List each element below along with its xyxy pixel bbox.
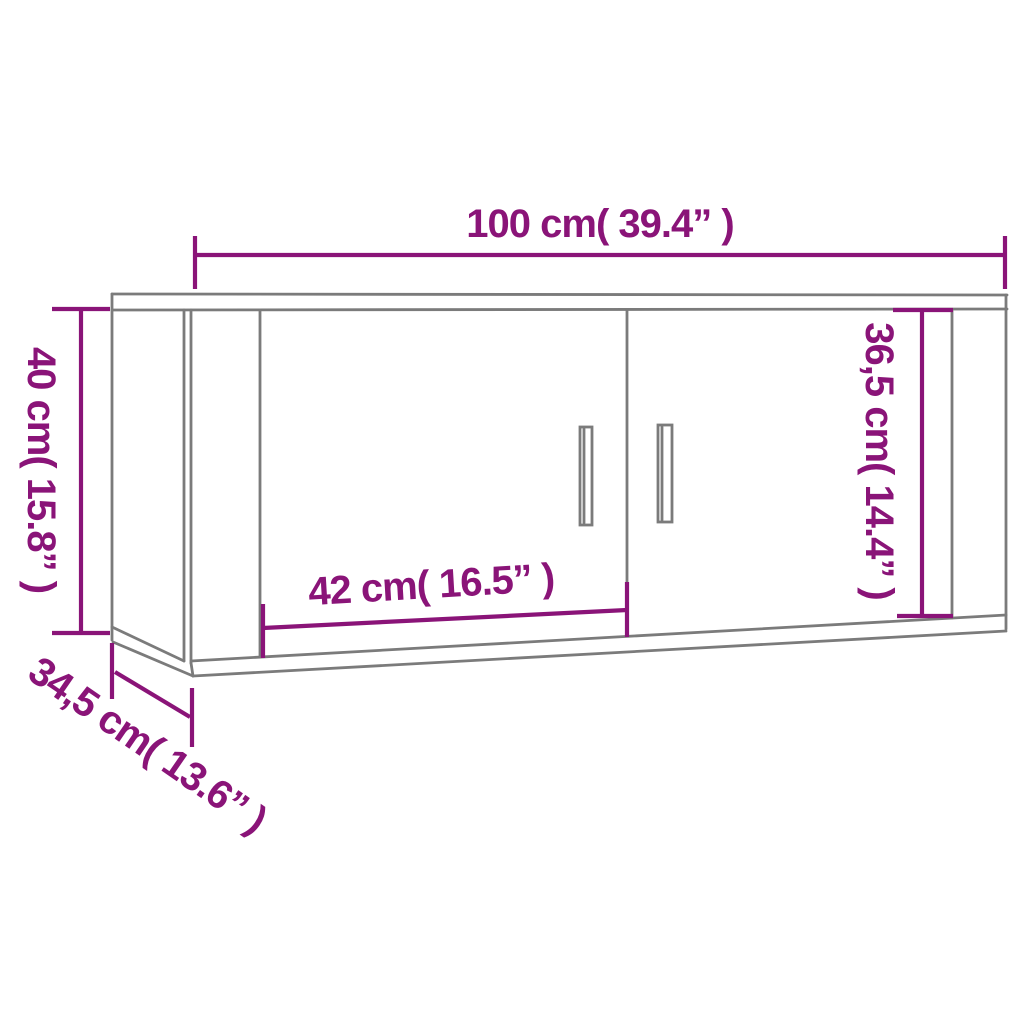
door-width-label: 42 cm( 16.5” ) [307,556,555,615]
overall-width-label: 100 cm( 39.4” ) [466,202,733,246]
door-height-label: 36,5 cm( 14.4” ) [857,322,901,600]
right-handle-body [658,425,672,522]
door-height-dimension [893,310,953,616]
cabinet-dimension-drawing: 100 cm( 39.4” ) 40 cm( 15.8” ) 36,5 cm( … [0,0,1024,1024]
cabinet-top-front-edge [112,309,1007,310]
dimension-diagram: 100 cm( 39.4” ) 40 cm( 15.8” ) 36,5 cm( … [0,0,1024,1024]
overall-height-label: 40 cm( 15.8” ) [19,347,63,593]
depth-label: 34,5 cm( 13.6” ) [21,649,275,842]
left-handle-body [580,427,592,525]
cabinet-top-back-edge [112,294,1007,295]
right-door-handle [658,425,672,522]
bottom-left-corner-join [191,663,193,676]
dimension-label-group: 100 cm( 39.4” ) 40 cm( 15.8” ) 36,5 cm( … [19,202,901,842]
left-door-handle [580,427,592,525]
